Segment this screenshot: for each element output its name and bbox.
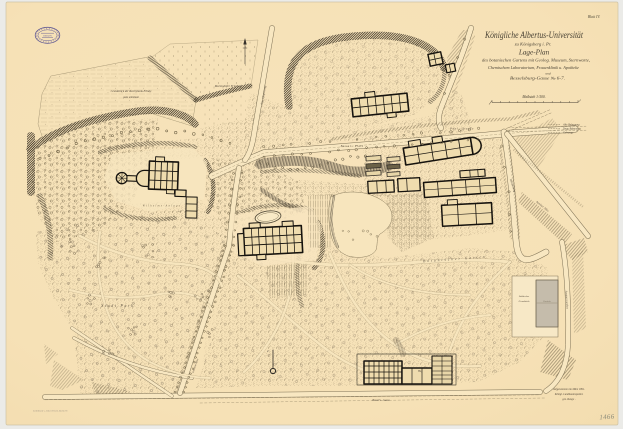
svg-text:Neue Bebauung: Neue Bebauung [562,128,581,131]
svg-text:Marienhöfer Friedhof: Marienhöfer Friedhof [214,84,243,88]
svg-text:1466: 1466 [599,412,615,421]
svg-text:Lichtdruck v. Albert Frisch, B: Lichtdruck v. Albert Frisch, Berlin W. [33,410,68,413]
svg-text:Grundstück: Grundstück [519,300,531,303]
svg-text:zu Königsberg i. Pr.: zu Königsberg i. Pr. [514,42,551,47]
svg-text:Bessel - Platz: Bessel - Platz [341,144,364,148]
svg-text:Bessel's - Gasse: Bessel's - Gasse [372,399,390,402]
svg-text:Königl. Landbauinspektor.: Königl. Landbauinspektor. [554,393,584,396]
svg-text:ganz unbebaut: ganz unbebaut [123,96,139,99]
svg-text:gez. Runge .: gez. Runge . [562,398,575,401]
svg-text:Paul - Straße: Paul - Straße [449,127,474,131]
svg-text:Königliche Albertus-Universitä: Königliche Albertus-Universität [484,30,583,40]
svg-text:BERLIN: BERLIN [43,35,52,37]
svg-text:Städtisches: Städtisches [519,295,529,298]
svg-text:Grundstück der Reichsbank-Fili: Grundstück der Reichsbank-Filiale [111,89,152,93]
svg-text:Alte Bebauung: Alte Bebauung [562,124,580,127]
svg-text:Blatt IV.: Blatt IV. [588,15,601,19]
svg-text:Stadt Park: Stadt Park [101,304,134,308]
svg-text:Aufgenommen im März 1891.: Aufgenommen im März 1891. [552,388,585,391]
svg-text:Besselsburg-Gasse № 6-7.: Besselsburg-Gasse № 6-7. [510,76,565,81]
svg-text:Gewächs: Gewächs [543,301,551,303]
svg-text:Wilhelms-Anlage: Wilhelms-Anlage [143,205,182,208]
svg-text:Maßstab 1:500.: Maßstab 1:500. [521,95,545,99]
svg-text:Lage-Plan: Lage-Plan [518,49,550,57]
svg-text:Gehwege: Gehwege [563,132,574,135]
